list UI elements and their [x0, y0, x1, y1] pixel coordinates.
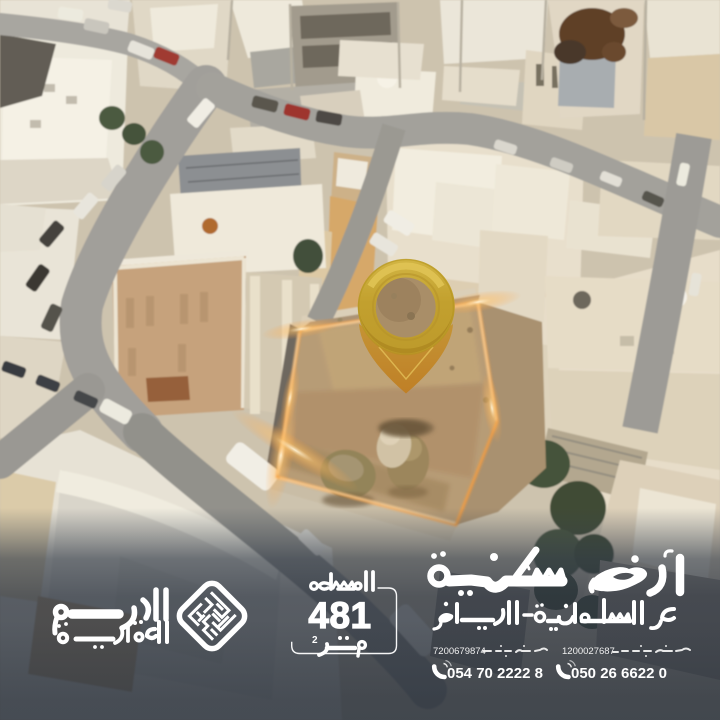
svg-text:7200679874: 7200679874 [433, 646, 486, 657]
svg-text:1200027687: 1200027687 [562, 646, 615, 657]
svg-text:481: 481 [308, 595, 371, 636]
svg-text:050 26 6622 0: 050 26 6622 0 [571, 665, 667, 682]
svg-text:054 70 2222 8: 054 70 2222 8 [447, 665, 543, 682]
svg-text:2: 2 [312, 635, 318, 646]
